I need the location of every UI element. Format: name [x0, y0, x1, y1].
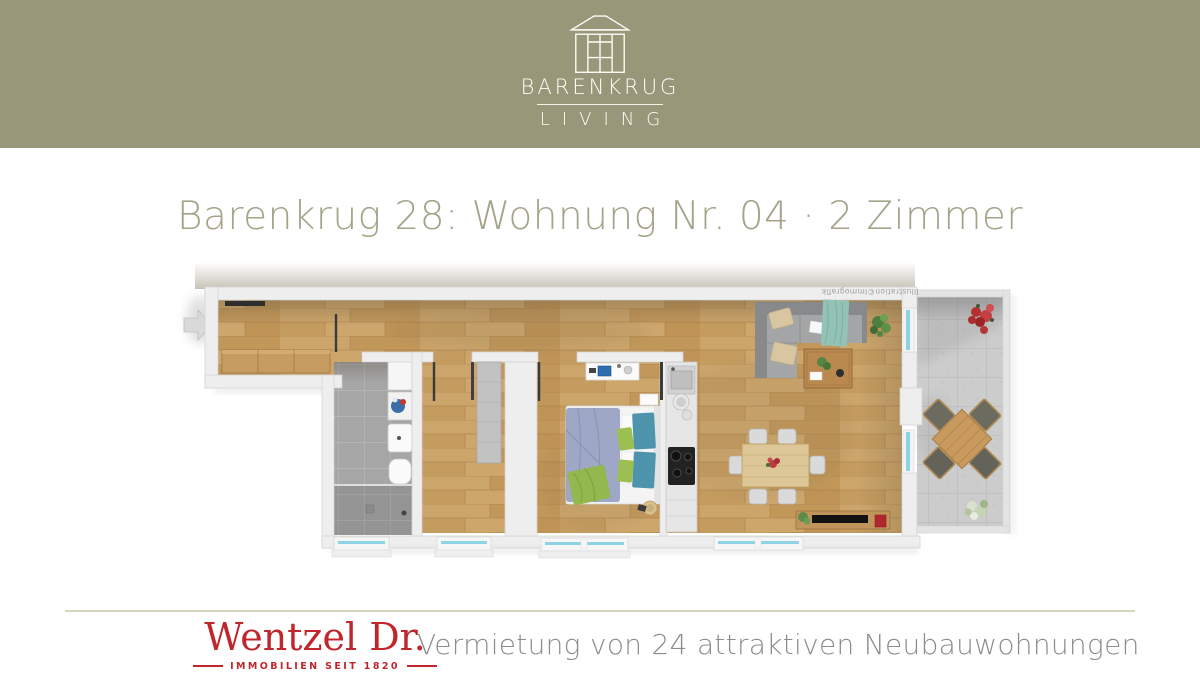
- washing-machine: [388, 361, 412, 390]
- flyer-page: BARENKRUG LIVING Barenkrug 28: Wohnung N…: [0, 0, 1200, 674]
- hall-drop-shadow: [215, 388, 327, 393]
- wall-top: [205, 287, 910, 300]
- dining-chair: [749, 489, 767, 504]
- wall-accent: [471, 362, 474, 400]
- laptop: [598, 366, 611, 376]
- wall-bath-top: [362, 352, 433, 362]
- house-logo-icon: [561, 10, 639, 74]
- tv-sideboard: [796, 511, 890, 529]
- wall-store-bedroom: [505, 362, 537, 536]
- dining-chair: [810, 456, 825, 474]
- wall-right-b: [902, 352, 917, 388]
- tv: [812, 515, 868, 523]
- wall-bath-left: [322, 375, 334, 548]
- claim-text: IMMOBILIEN SEIT 1820: [230, 661, 400, 672]
- parapet-bottom: [917, 526, 1010, 533]
- nightstand: [640, 394, 658, 405]
- floor-shadow-blob: [390, 314, 650, 350]
- coffee-table: [804, 349, 852, 388]
- terrace-dining-set: [923, 399, 1002, 480]
- floor-plan-svg: Illustration©Immografik: [175, 253, 1020, 575]
- wall-bedroom-top: [577, 352, 683, 362]
- logo-wordmark: BARENKRUG: [521, 77, 680, 98]
- wardrobe: [477, 362, 501, 463]
- footer-divider: [65, 610, 1135, 612]
- header-banner: BARENKRUG LIVING: [0, 0, 1200, 148]
- faucet: [397, 436, 401, 440]
- desk: [586, 363, 639, 380]
- window-bath: [332, 537, 391, 557]
- wall-top-shadow: [195, 262, 915, 289]
- dining-chair: [778, 489, 796, 504]
- terrace: [917, 297, 1003, 526]
- hall-sideboard: [222, 350, 330, 373]
- shower-drain: [366, 505, 374, 513]
- logo-divider: [537, 104, 663, 105]
- wall-left: [205, 287, 218, 388]
- barenkrug-logo: BARENKRUG LIVING: [0, 0, 1200, 148]
- wall-store-top: [472, 352, 538, 362]
- watermark-text: Illustration©Immografik: [821, 287, 919, 296]
- claim-dash-left: [193, 665, 223, 667]
- green-cushion: [617, 427, 635, 451]
- coat-rack: [225, 301, 265, 306]
- footer-tagline: Vermietung von 24 attraktiven Neubauwohn…: [417, 628, 1140, 661]
- dining-chair: [749, 429, 767, 444]
- teal-pillow: [632, 412, 656, 449]
- bathroom: [334, 361, 412, 535]
- wentzel-logo: Wentzel Dr. IMMOBILIEN SEIT 1820: [193, 618, 437, 672]
- footer-brand-name: Wentzel Dr.: [193, 618, 437, 658]
- toilet: [389, 459, 411, 484]
- dining-chair: [778, 429, 796, 444]
- floor-plan: Illustration©Immografik: [175, 253, 1020, 575]
- logo-wordmark-sub: LIVING: [528, 111, 672, 129]
- shower-fitting: [402, 511, 407, 516]
- parapet-shadow: [1010, 295, 1016, 535]
- tall-cabinet-edge: [660, 362, 663, 400]
- coffee-machine: [875, 515, 886, 527]
- green-cushion: [617, 459, 634, 482]
- page-title: Barenkrug 28: Wohnung Nr. 04 · 2 Zimmer: [0, 194, 1200, 239]
- wall-bath-right: [412, 352, 422, 536]
- teal-pillow: [632, 451, 656, 488]
- kettle: [682, 410, 692, 420]
- outside-mask: [205, 388, 323, 538]
- kitchen-faucet: [671, 367, 675, 371]
- footer-brand-claim: IMMOBILIEN SEIT 1820: [193, 661, 437, 672]
- parapet-top: [917, 290, 1010, 297]
- claim-dash-right: [407, 665, 437, 667]
- window-living: [714, 537, 803, 550]
- wall-right-c: [902, 473, 917, 536]
- double-bed: [566, 406, 660, 506]
- parapet-right: [1003, 290, 1010, 533]
- wall-hall-bottom: [205, 375, 342, 388]
- terrace-door: [900, 388, 922, 425]
- window-storeroom: [435, 537, 493, 557]
- window-bedroom: [539, 538, 630, 558]
